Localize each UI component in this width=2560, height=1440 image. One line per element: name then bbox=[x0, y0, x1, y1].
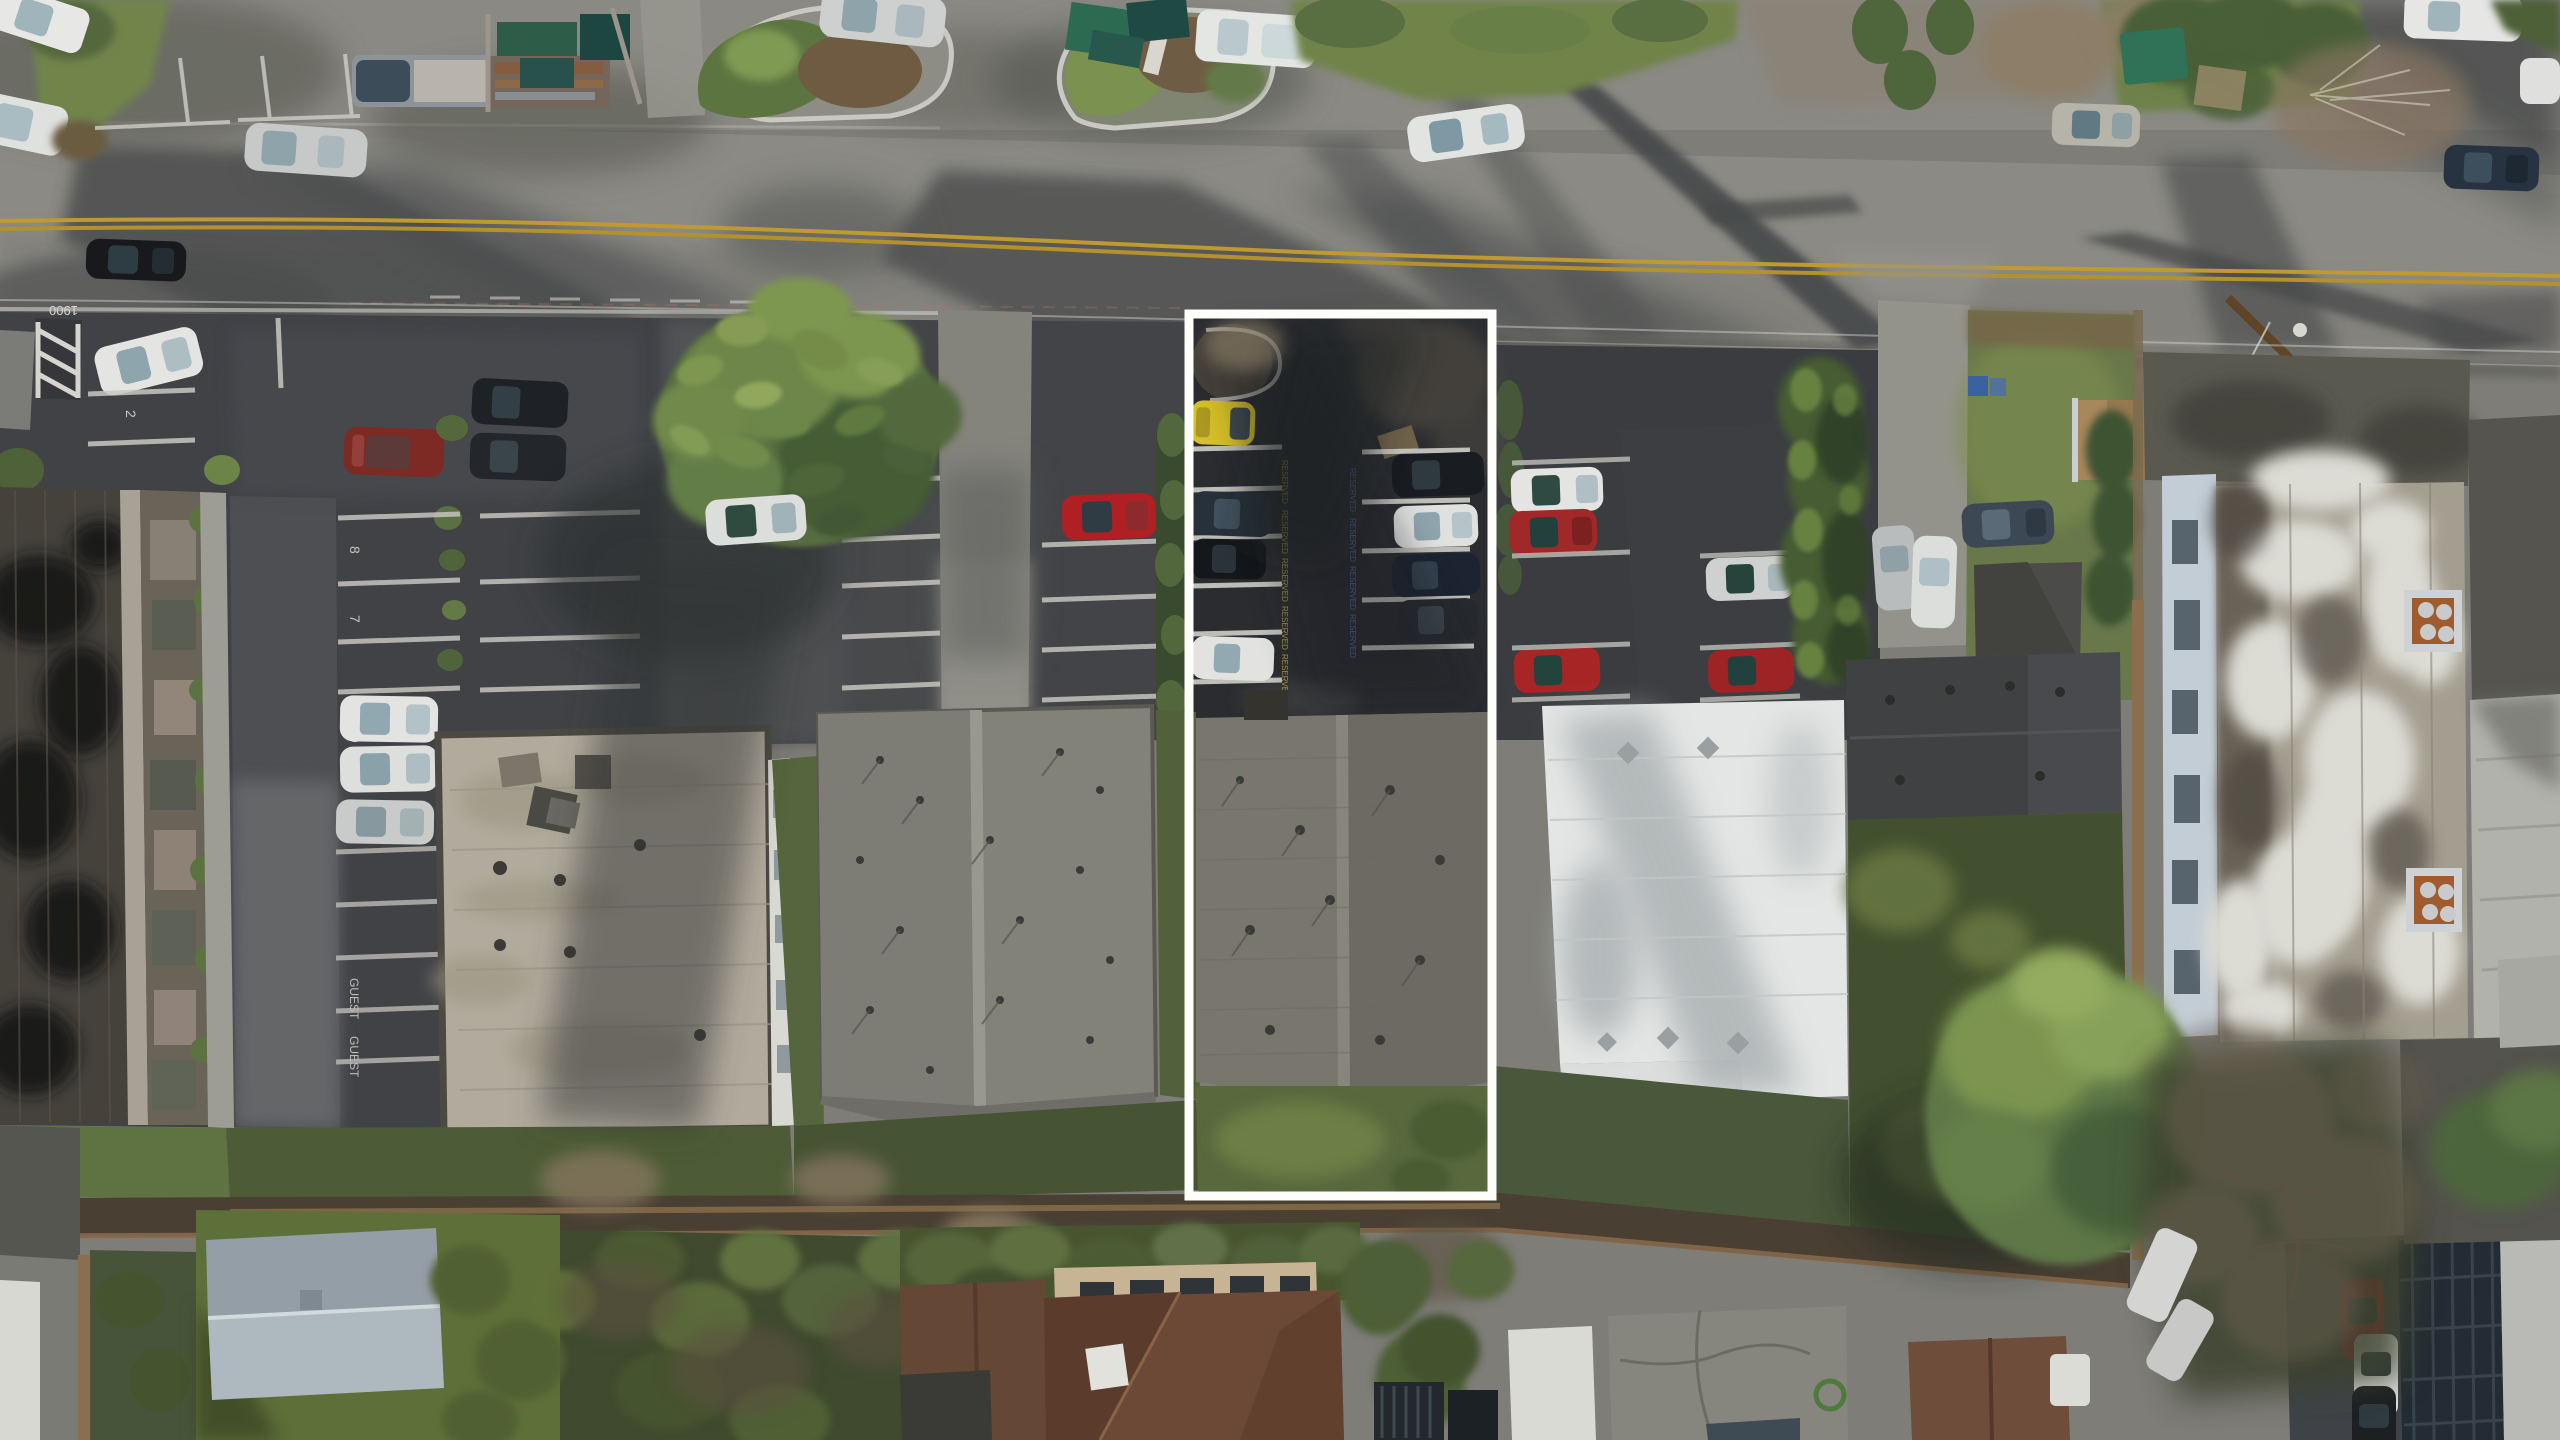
svg-text:8: 8 bbox=[347, 546, 363, 554]
svg-text:GUEST: GUEST bbox=[347, 978, 361, 1020]
svg-text:1900: 1900 bbox=[49, 303, 78, 318]
svg-text:GUEST: GUEST bbox=[347, 1036, 361, 1078]
svg-text:7: 7 bbox=[347, 615, 363, 623]
svg-text:2: 2 bbox=[123, 410, 139, 418]
